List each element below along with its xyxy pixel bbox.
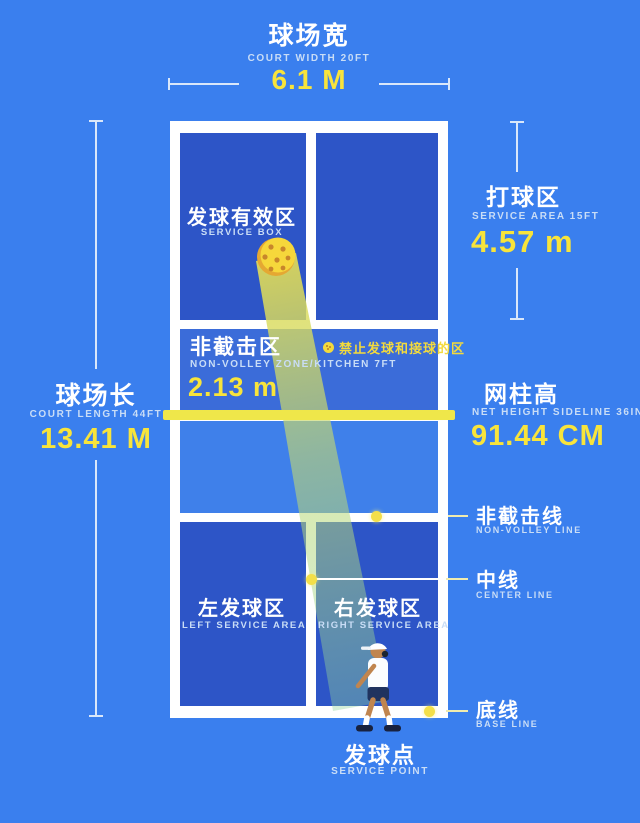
court-length-value: 13.41 M (6, 423, 186, 456)
service-box-right-panel (316, 133, 438, 320)
service-area-tick-bottom (510, 318, 524, 320)
left-service-area-label: 左发球区 (182, 592, 302, 621)
court-width-subtitle: COURT WIDTH 20FT (169, 53, 449, 64)
service-area-title: 打球区 (486, 178, 561, 212)
non-volley-line-callout (448, 515, 468, 517)
length-measure-tick-top (89, 120, 103, 122)
center-line-dot (306, 574, 317, 585)
width-measure-tick-right (448, 78, 450, 90)
court-length-subtitle: COURT LENGTH 44FT (6, 409, 186, 420)
left-service-area-sublabel: LEFT SERVICE AREA (182, 620, 302, 631)
service-box-sublabel: SERVICE BOX (182, 227, 302, 238)
center-line-callout-outer (446, 578, 468, 580)
center-line-callout-inner (316, 578, 446, 580)
service-area-tick-top (510, 121, 524, 123)
base-line-callout-outer (446, 710, 468, 712)
right-service-area-label: 右发球区 (318, 592, 438, 621)
center-line-label: 中线 (476, 564, 520, 593)
service-area-subtitle: SERVICE AREA 15FT (472, 211, 599, 222)
net-line (163, 410, 455, 420)
court-width-value: 6.1 M (239, 64, 379, 96)
court-width-title: 球场宽 (169, 16, 449, 52)
base-line-callout-inner (434, 710, 446, 712)
right-service-area-sublabel: RIGHT SERVICE AREA (318, 620, 438, 631)
pickleball-mini-icon (323, 342, 334, 353)
length-measure-line-bottom (95, 460, 97, 716)
no-serve-warning-text: 禁止发球和接球的区 (339, 338, 465, 357)
non-volley-zone-value: 2.13 m (188, 372, 278, 403)
non-volley-zone-bottom-panel (180, 421, 438, 513)
non-volley-zone-sublabel: NON-VOLLEY ZONE/KITCHEN 7FT (190, 359, 397, 370)
non-volley-line-dot (371, 511, 382, 522)
center-line-sublabel: CENTER LINE (476, 590, 554, 600)
service-area-measure-line-bottom (516, 268, 518, 319)
length-measure-tick-bottom (89, 715, 103, 717)
net-height-subtitle: NET HEIGHT SIDELINE 36IN (472, 407, 640, 418)
net-height-value: 91.44 CM (471, 420, 605, 453)
non-volley-zone-label: 非截击区 (190, 331, 282, 361)
net-height-title: 网柱高 (484, 375, 559, 409)
non-volley-line-sublabel: NON-VOLLEY LINE (476, 525, 582, 535)
service-area-value: 4.57 m (471, 224, 574, 260)
pickleball-court-infographic: 球场宽 COURT WIDTH 20FT 6.1 M 球场长 COURT LEN… (0, 0, 640, 823)
length-measure-line-top (95, 121, 97, 369)
court-length-title: 球场长 (6, 376, 186, 412)
base-line-dot (424, 706, 435, 717)
service-area-measure-line-top (516, 122, 518, 172)
service-box-label: 发球有效区 (182, 201, 302, 230)
base-line-sublabel: BASE LINE (476, 719, 538, 729)
width-measure-tick-left (168, 78, 170, 90)
no-serve-warning: 禁止发球和接球的区 (323, 338, 465, 357)
service-point-sublabel: SERVICE POINT (300, 766, 460, 777)
